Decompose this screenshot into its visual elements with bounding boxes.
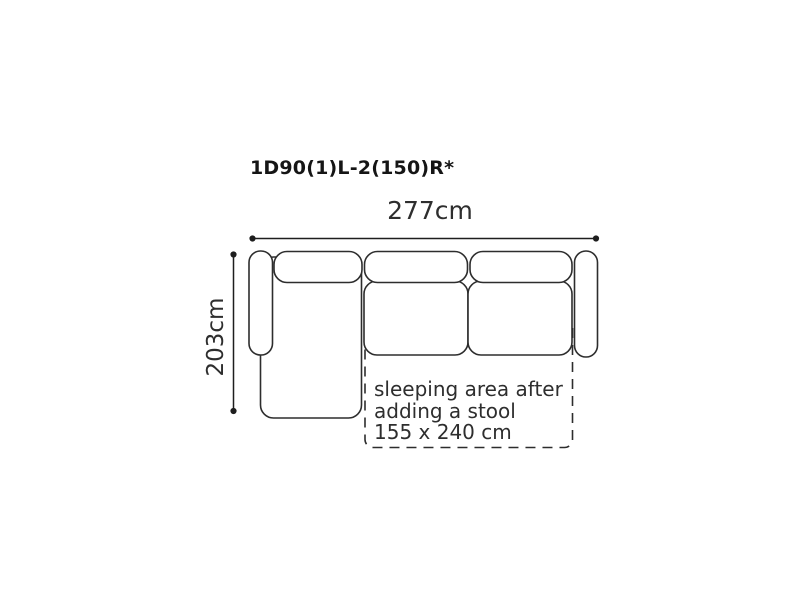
depth-dimension-line xyxy=(230,251,236,414)
back-cushion-middle xyxy=(365,252,468,283)
right-armrest xyxy=(575,251,598,357)
dimension-endpoint-dot xyxy=(249,235,255,241)
dimension-endpoint-dot xyxy=(230,408,236,414)
left-armrest xyxy=(249,251,273,355)
sleeping-area-note: sleeping area after adding a stool 155 x… xyxy=(374,379,563,444)
sleeping-area-note-line-3: 155 x 240 cm xyxy=(374,422,563,444)
seat-cushion-right xyxy=(468,281,572,355)
seat-cushion-middle xyxy=(364,281,468,355)
back-cushion-right xyxy=(470,252,572,283)
sofa-dimension-diagram: 1D90(1)L-2(150)R* 277cm 203cm sleeping a… xyxy=(0,0,800,600)
product-code-title: 1D90(1)L-2(150)R* xyxy=(250,157,454,179)
sleeping-area-note-line-1: sleeping area after xyxy=(374,379,563,401)
back-cushion-left xyxy=(274,252,362,283)
sleeping-area-note-line-2: adding a stool xyxy=(374,401,563,423)
sofa-top-view-drawing xyxy=(0,0,800,600)
dimension-endpoint-dot xyxy=(230,251,236,257)
depth-dimension-label: 203cm xyxy=(203,287,229,387)
width-dimension-line xyxy=(249,235,599,241)
width-dimension-label: 277cm xyxy=(330,196,530,225)
dimension-endpoint-dot xyxy=(593,235,599,241)
